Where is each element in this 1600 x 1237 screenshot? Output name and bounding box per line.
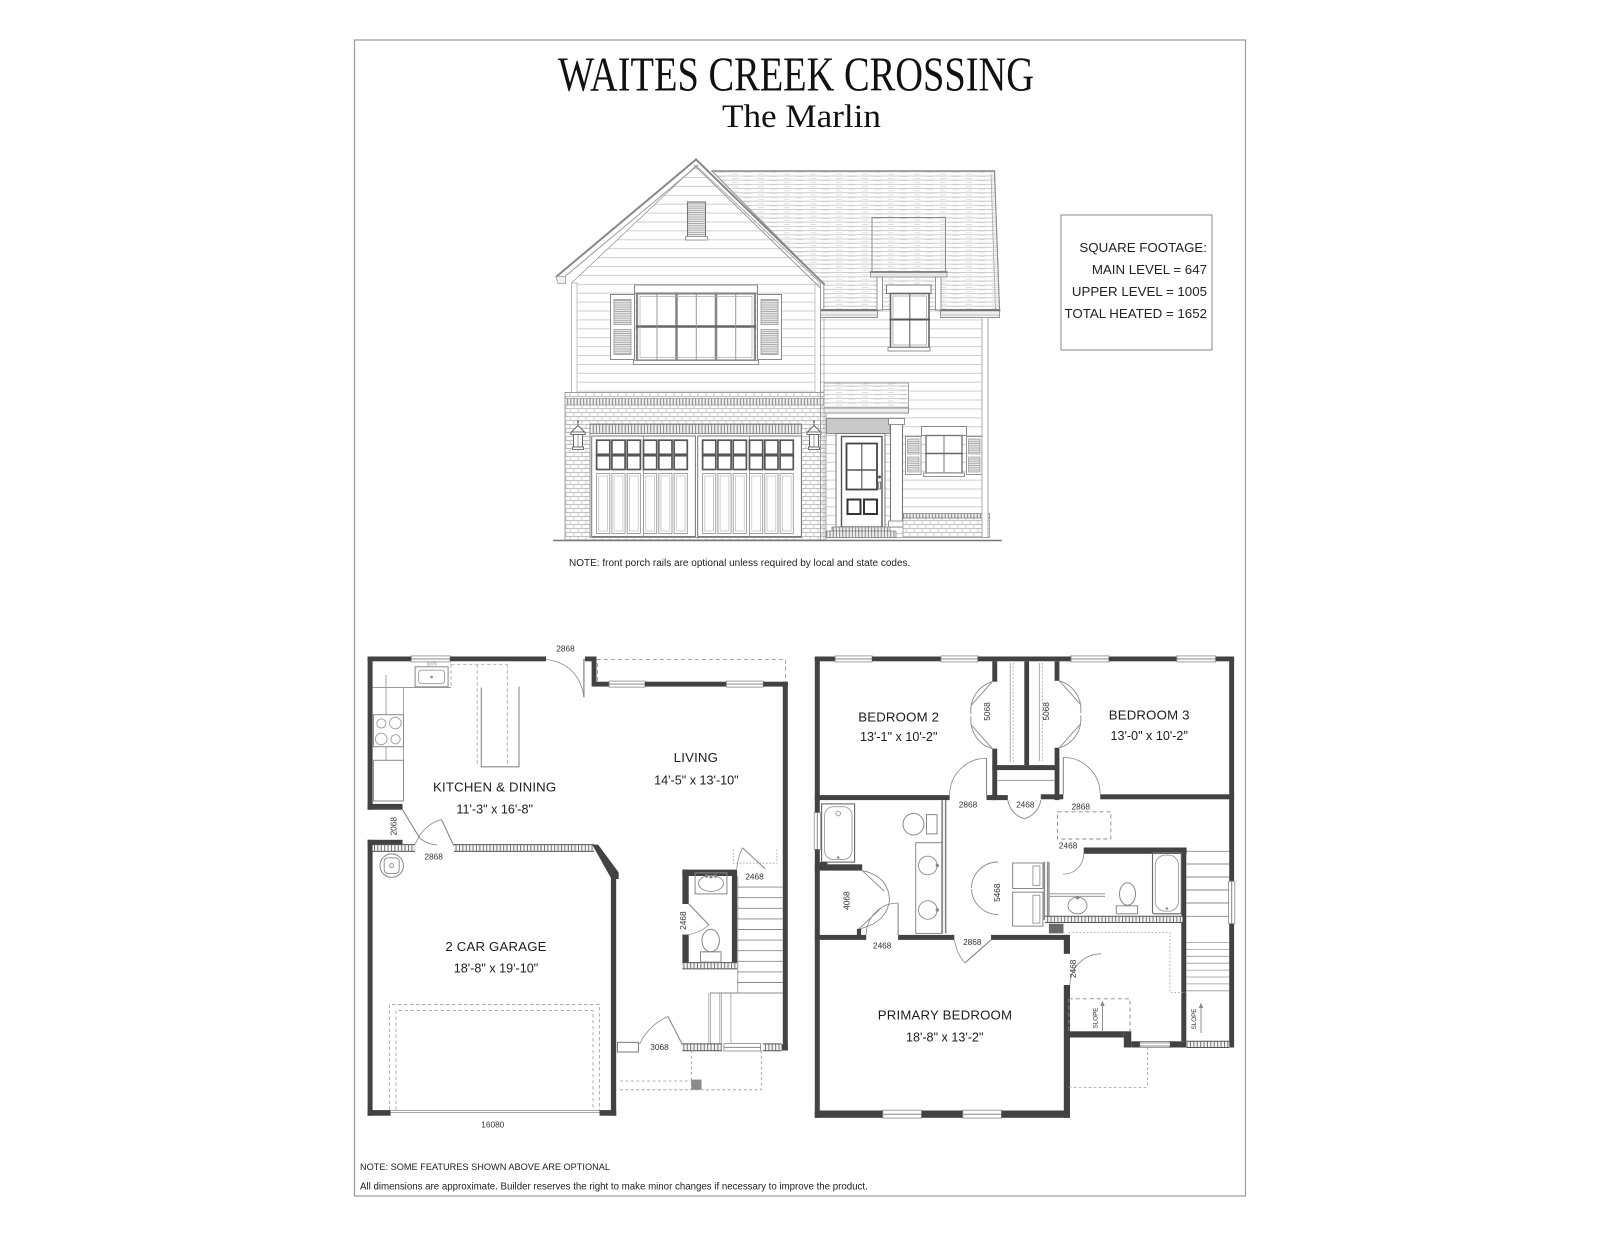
- svg-text:11'-3" x 16'-8": 11'-3" x 16'-8": [456, 803, 533, 817]
- svg-text:5068: 5068: [1041, 702, 1051, 721]
- svg-text:2468: 2468: [1016, 800, 1035, 810]
- svg-text:14'-5" x 13'-10": 14'-5" x 13'-10": [654, 774, 738, 788]
- svg-text:13'-1" x 10'-2": 13'-1" x 10'-2": [860, 730, 937, 744]
- svg-text:SLOPE: SLOPE: [1093, 1008, 1100, 1029]
- svg-text:KITCHEN & DINING: KITCHEN & DINING: [433, 779, 556, 794]
- svg-text:MAIN LEVEL = 647: MAIN LEVEL = 647: [1092, 262, 1207, 277]
- svg-text:5068: 5068: [982, 702, 992, 721]
- svg-text:2868: 2868: [424, 852, 443, 862]
- svg-text:5468: 5468: [992, 883, 1002, 902]
- svg-text:3068: 3068: [650, 1042, 669, 1052]
- svg-text:The Marlin: The Marlin: [722, 99, 881, 135]
- svg-text:2468: 2468: [745, 872, 764, 882]
- svg-text:2068: 2068: [389, 817, 399, 836]
- svg-text:2468: 2468: [678, 911, 688, 930]
- svg-text:13'-0" x 10'-2": 13'-0" x 10'-2": [1110, 729, 1187, 743]
- svg-text:18'-8" x 13'-2": 18'-8" x 13'-2": [906, 1030, 983, 1044]
- svg-text:2 CAR GARAGE: 2 CAR GARAGE: [445, 939, 546, 954]
- svg-text:2468: 2468: [873, 940, 892, 950]
- svg-text:NOTE: front porch rails are op: NOTE: front porch rails are optional unl…: [569, 558, 910, 569]
- svg-text:2868: 2868: [963, 937, 982, 947]
- svg-text:2468: 2468: [1059, 840, 1078, 850]
- svg-text:TOTAL HEATED = 1652: TOTAL HEATED = 1652: [1064, 306, 1207, 321]
- svg-text:BEDROOM 3: BEDROOM 3: [1109, 708, 1190, 723]
- svg-text:WAITES CREEK CROSSING: WAITES CREEK CROSSING: [558, 47, 1034, 102]
- svg-text:LIVING: LIVING: [674, 750, 718, 765]
- svg-text:NOTE: SOME FEATURES SHOWN ABOV: NOTE: SOME FEATURES SHOWN ABOVE ARE OPTI…: [360, 1162, 610, 1172]
- svg-text:PRIMARY BEDROOM: PRIMARY BEDROOM: [878, 1008, 1012, 1023]
- svg-text:All dimensions are approximate: All dimensions are approximate. Builder …: [360, 1182, 868, 1193]
- svg-text:BEDROOM 2: BEDROOM 2: [858, 710, 939, 725]
- svg-text:4068: 4068: [842, 891, 852, 910]
- svg-text:SLOPE: SLOPE: [1191, 1009, 1198, 1030]
- svg-text:2868: 2868: [1072, 802, 1091, 812]
- svg-text:2868: 2868: [556, 644, 575, 654]
- svg-text:UPPER LEVEL = 1005: UPPER LEVEL = 1005: [1072, 284, 1207, 299]
- svg-text:SQUARE FOOTAGE:: SQUARE FOOTAGE:: [1079, 240, 1207, 255]
- svg-text:2468: 2468: [1068, 959, 1078, 978]
- svg-text:16080: 16080: [481, 1120, 504, 1130]
- svg-text:2868: 2868: [959, 800, 978, 810]
- svg-text:18'-8" x 19'-10": 18'-8" x 19'-10": [454, 961, 538, 975]
